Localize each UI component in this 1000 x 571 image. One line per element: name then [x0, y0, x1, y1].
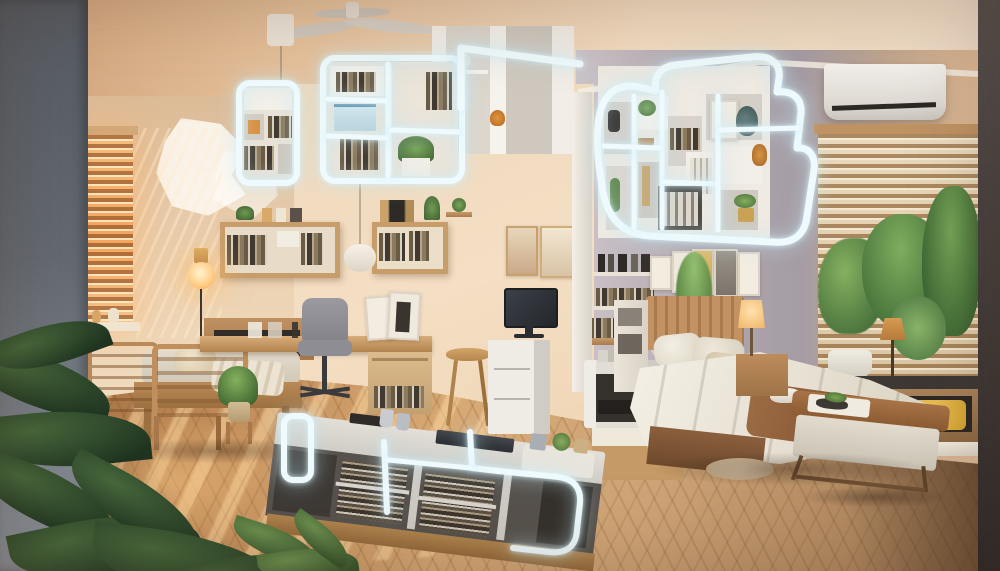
highlight-small-shelf[interactable] [239, 83, 297, 183]
highlight-connector [461, 48, 580, 108]
highlight-large-shelf[interactable] [323, 58, 462, 181]
foreground-plant [0, 320, 340, 571]
right-edge-wall [978, 0, 1000, 571]
highlight-bedroom-shelf[interactable] [597, 57, 814, 243]
apartment-scene [0, 0, 1000, 571]
